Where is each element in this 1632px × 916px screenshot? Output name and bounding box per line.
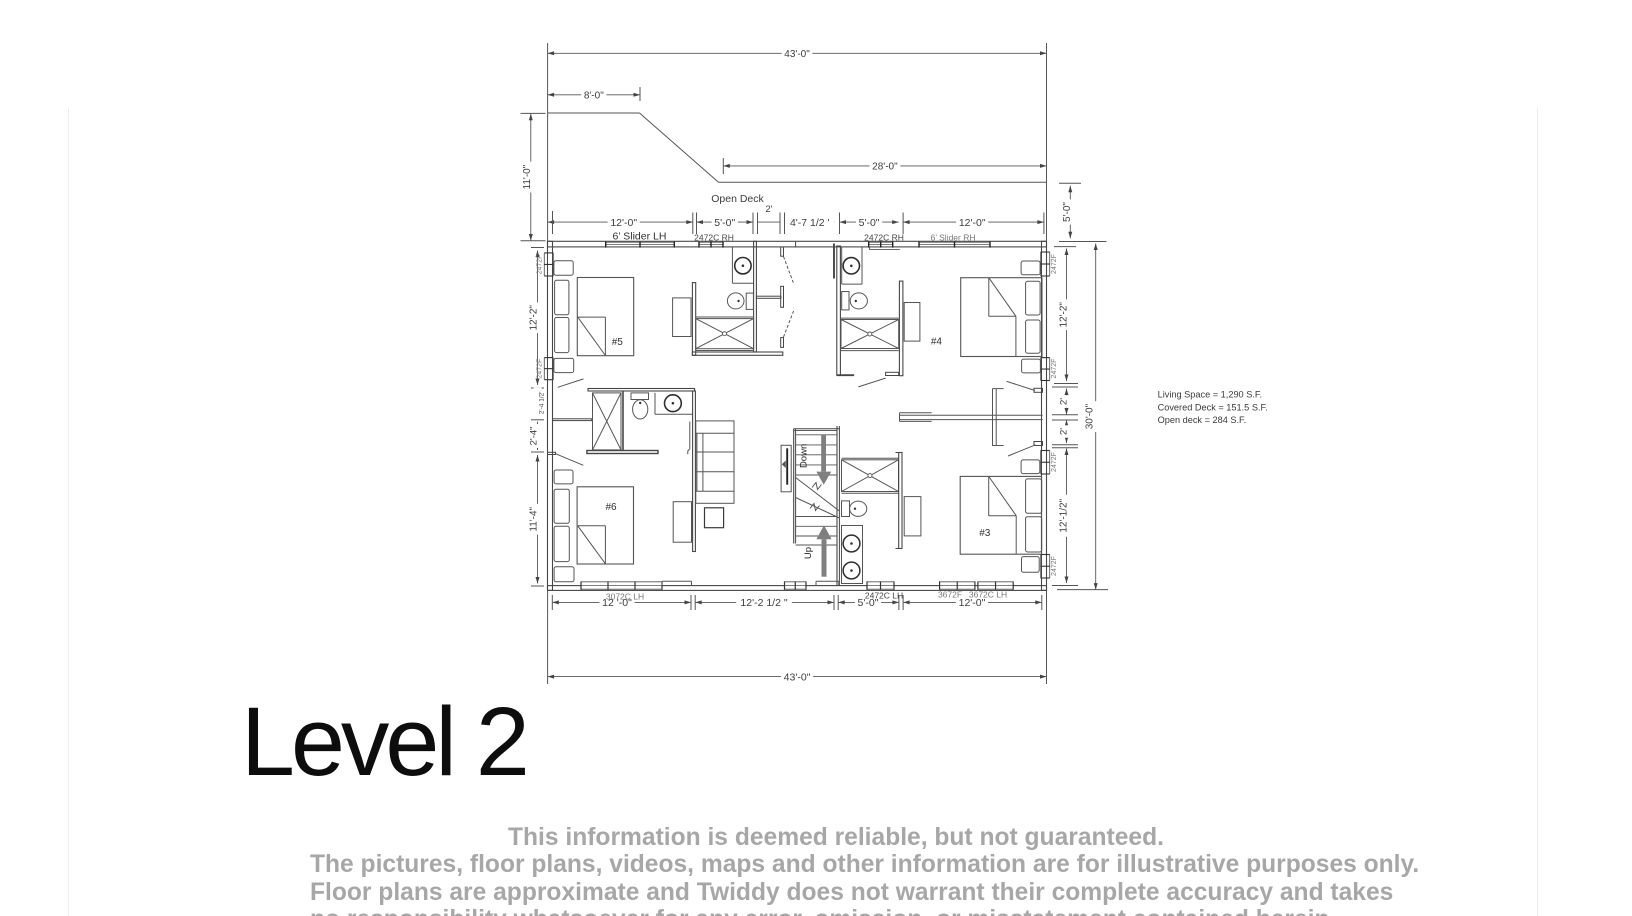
- svg-text:3072C LH: 3072C LH: [606, 592, 644, 602]
- svg-text:2'-4": 2'-4": [528, 426, 539, 445]
- svg-text:5'-0": 5'-0": [714, 217, 735, 229]
- svg-text:#3: #3: [979, 528, 991, 539]
- svg-text:43'-0": 43'-0": [784, 671, 811, 683]
- svg-text:Covered Deck = 151.5 S.F.: Covered Deck = 151.5 S.F.: [1158, 402, 1268, 412]
- svg-text:2472F: 2472F: [1051, 359, 1058, 379]
- svg-text:11'-0": 11'-0": [522, 164, 533, 189]
- svg-text:Open Deck: Open Deck: [711, 193, 764, 205]
- svg-text:Down: Down: [798, 444, 809, 468]
- svg-text:12'-2": 12'-2": [1059, 302, 1070, 328]
- svg-text:2472F: 2472F: [537, 255, 544, 275]
- svg-text:2472F: 2472F: [537, 359, 544, 379]
- svg-text:3672F: 3672F: [938, 590, 962, 600]
- svg-text:43'-0": 43'-0": [784, 49, 810, 60]
- svg-text:2472F: 2472F: [1051, 452, 1058, 472]
- svg-text:2'-4 1/2': 2'-4 1/2': [538, 391, 545, 414]
- svg-text:2': 2': [765, 204, 772, 215]
- svg-text:#4: #4: [931, 337, 943, 348]
- svg-text:30'-0": 30'-0": [1084, 403, 1095, 429]
- svg-text:#6: #6: [605, 502, 617, 513]
- svg-text:5'-0": 5'-0": [1062, 202, 1073, 222]
- svg-text:28'-0": 28'-0": [872, 162, 898, 173]
- svg-text:4'-7 1/2 ': 4'-7 1/2 ': [790, 217, 830, 229]
- svg-text:2472F: 2472F: [1051, 254, 1058, 274]
- svg-text:#5: #5: [612, 337, 624, 348]
- svg-text:Open deck = 284 S.F.: Open deck = 284 S.F.: [1158, 415, 1247, 425]
- svg-text:11'-4": 11'-4": [529, 506, 540, 531]
- svg-text:Living Space = 1,290 S.F.: Living Space = 1,290 S.F.: [1158, 389, 1262, 399]
- svg-text:2': 2': [1058, 398, 1069, 405]
- svg-text:8'-0": 8'-0": [584, 90, 604, 101]
- svg-text:12'-2": 12'-2": [529, 305, 540, 331]
- svg-text:2472C LH: 2472C LH: [865, 591, 903, 601]
- svg-text:6’ Slider LH: 6’ Slider LH: [613, 231, 667, 243]
- svg-text:2472F: 2472F: [1051, 556, 1058, 576]
- svg-text:12'-0": 12'-0": [959, 217, 986, 229]
- svg-text:3672C LH: 3672C LH: [969, 590, 1007, 600]
- svg-text:12'-0": 12'-0": [610, 217, 637, 229]
- svg-text:12'-1/2": 12'-1/2": [1059, 498, 1070, 532]
- svg-text:2': 2': [1058, 428, 1069, 435]
- svg-text:Up: Up: [803, 547, 814, 559]
- svg-text:5'-0": 5'-0": [859, 217, 880, 229]
- svg-text:12'-2 1/2 ": 12'-2 1/2 ": [740, 597, 787, 609]
